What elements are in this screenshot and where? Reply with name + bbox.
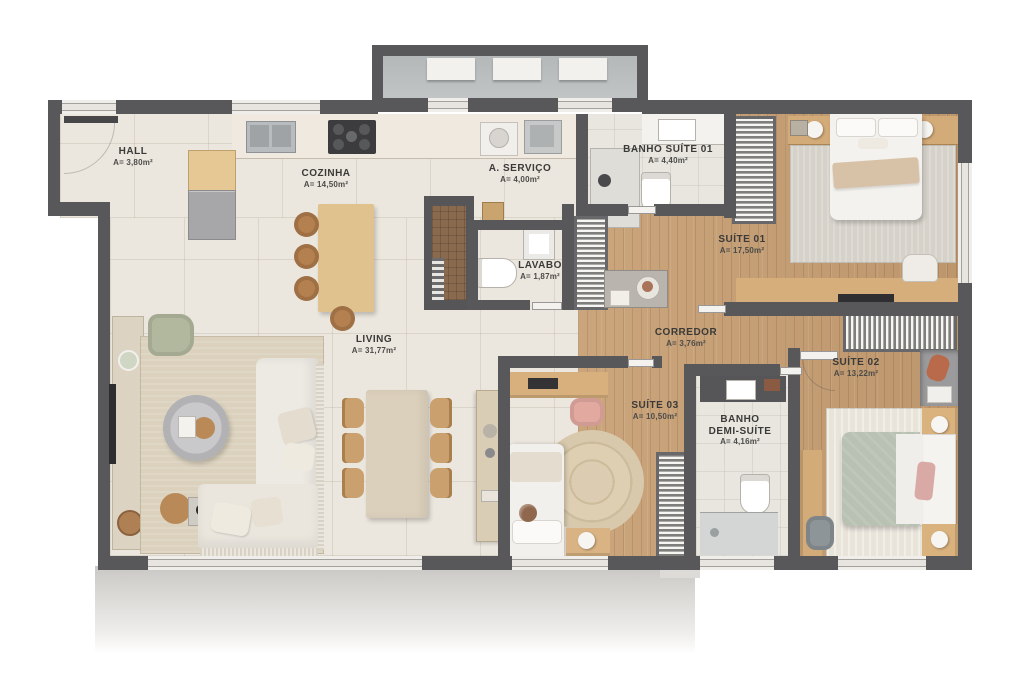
dining-chair-r2 xyxy=(430,433,452,463)
room-area: A= 1,87m² xyxy=(518,272,562,281)
corridor-decor-bread xyxy=(642,281,653,292)
laundry-washer-door xyxy=(489,128,509,148)
room-label-suite-03: SUÍTE 03 A= 10,50m² xyxy=(631,400,678,421)
room-area: A= 4,16m² xyxy=(709,437,772,446)
wall-banho-demi-east xyxy=(788,364,800,556)
suite03-pillow xyxy=(512,520,562,544)
ac-unit-1 xyxy=(427,58,475,80)
window-balcony-opening-1 xyxy=(428,98,468,112)
kitchen-sink-basin-right xyxy=(272,125,291,147)
suite03-lamp xyxy=(578,532,595,549)
banho-demi-sink xyxy=(726,380,756,400)
room-label-suite-02: SUÍTE 02 A= 13,22m² xyxy=(832,357,879,378)
tv-panel xyxy=(109,384,116,464)
tech-balcony-wall-left xyxy=(372,45,383,104)
coffee-table-bowl xyxy=(193,417,215,439)
dining-table xyxy=(366,390,428,518)
room-name: DEMI-SUÍTE xyxy=(709,426,772,438)
room-area: A= 13,22m² xyxy=(832,369,879,378)
kitchen-fridge xyxy=(188,190,236,240)
room-label-cozinha: COZINHA A= 14,50m² xyxy=(301,168,350,189)
sofa-cushion-2 xyxy=(282,442,315,472)
suite02-wardrobe xyxy=(843,312,957,352)
room-name: COZINHA xyxy=(301,168,350,180)
cooktop-burner-3 xyxy=(333,139,344,150)
ac-unit-3 xyxy=(559,58,607,80)
room-label-servico: A. SERVIÇO A= 4,00m² xyxy=(489,163,552,184)
living-armchair xyxy=(148,314,194,356)
wall-suite03-banho xyxy=(684,364,696,556)
bench-decor-plate xyxy=(118,350,139,371)
room-name: LIVING xyxy=(352,334,396,346)
tech-balcony-wall-top xyxy=(372,45,648,56)
room-area: A= 4,00m² xyxy=(489,175,552,184)
ac-unit-2 xyxy=(493,58,541,80)
room-label-suite-01: SUÍTE 01 A= 17,50m² xyxy=(718,234,765,255)
suite03-laptop xyxy=(528,378,558,389)
entry-door xyxy=(64,116,118,123)
sofa-cushion-3 xyxy=(210,501,253,537)
sideboard-vase-2 xyxy=(485,448,495,458)
room-name: HALL xyxy=(113,146,153,158)
dining-chair-r3 xyxy=(430,468,452,498)
door-banho-demi xyxy=(780,367,802,375)
utility-closet-shelf xyxy=(432,258,444,300)
suite02-niche-towels xyxy=(927,386,952,403)
terrace-slab xyxy=(95,566,695,654)
banho-s01-sink xyxy=(658,119,696,141)
room-name: A. SERVIÇO xyxy=(489,163,552,175)
sofa-fringe-bottom xyxy=(200,548,318,556)
wall-banho-s01-south-a xyxy=(576,204,628,216)
window-suite01 xyxy=(958,163,972,283)
room-area: A= 3,76m² xyxy=(655,339,717,348)
wall-banho-s01-south-b xyxy=(654,204,734,216)
room-area: A= 10,50m² xyxy=(631,412,678,421)
cooktop-burner-1 xyxy=(333,124,344,135)
island-stool-2 xyxy=(294,244,319,269)
suite02-chair xyxy=(806,516,834,550)
wall-lavabo-west xyxy=(468,220,478,310)
room-area: A= 14,50m² xyxy=(301,180,350,189)
suite01-lamp-left xyxy=(806,121,823,138)
lavabo-sink xyxy=(523,228,555,260)
suite01-pillow-right xyxy=(878,118,918,137)
dining-chair-l3 xyxy=(342,468,364,498)
room-area: A= 4,40m² xyxy=(623,156,713,165)
room-area: A= 17,50m² xyxy=(718,246,765,255)
wall-left-hall xyxy=(48,100,60,214)
lavabo-toilet xyxy=(477,258,517,288)
island-stool-3 xyxy=(294,276,319,301)
wall-lavabo-north xyxy=(468,220,568,230)
cooktop-burner-4 xyxy=(359,139,370,150)
room-label-hall: HALL A= 3,80m² xyxy=(113,146,153,167)
wall-suite03-north-a xyxy=(498,356,628,368)
window-balcony-opening-2 xyxy=(558,98,612,112)
suite01-pillow-small xyxy=(858,138,888,149)
kitchen-island xyxy=(318,204,374,312)
kitchen-tall-cabinet xyxy=(188,150,236,192)
room-label-lavabo: LAVABO A= 1,87m² xyxy=(518,260,562,281)
suite01-wardrobe xyxy=(732,116,776,224)
suite03-chair xyxy=(570,398,604,426)
room-name: CORREDOR xyxy=(655,327,717,339)
suite03-desk xyxy=(510,372,608,398)
island-stool-4 xyxy=(330,306,355,331)
wall-suite03-west xyxy=(498,356,510,556)
door-lavabo xyxy=(532,302,562,310)
suite02-lamp-top xyxy=(931,416,948,433)
wall-banho-s01-suite01 xyxy=(724,114,736,218)
wall-top-right xyxy=(642,100,972,114)
suite03-blanket xyxy=(510,452,562,482)
window-living xyxy=(148,556,422,570)
coffee-table-tray xyxy=(178,416,196,438)
banho-demi-decor xyxy=(764,379,780,391)
suite01-pillow-left xyxy=(836,118,876,137)
room-name: BANHO SUÍTE 01 xyxy=(623,144,713,156)
room-label-living: LIVING A= 31,77m² xyxy=(352,334,396,355)
kitchen-sink-basin-left xyxy=(250,125,269,147)
tech-balcony-wall-right xyxy=(637,45,648,104)
room-area: A= 31,77m² xyxy=(352,346,396,355)
room-name: SUÍTE 02 xyxy=(832,357,879,369)
room-name: BANHO xyxy=(709,414,772,426)
corridor-closet xyxy=(574,216,608,310)
window-suite03 xyxy=(512,556,608,570)
sideboard-vase-1 xyxy=(483,424,497,438)
wall-suite02-door-stub xyxy=(788,348,800,366)
window-kitchen xyxy=(232,100,320,114)
room-area: A= 3,80m² xyxy=(113,158,153,167)
suite01-desk-chair xyxy=(902,254,938,282)
cooktop-burner-2 xyxy=(359,124,370,135)
side-table-wood xyxy=(160,493,191,524)
sofa-cushion-4 xyxy=(250,496,284,528)
dining-chair-l1 xyxy=(342,398,364,428)
window-banho-demi xyxy=(700,556,774,570)
room-label-banho-suite-01: BANHO SUÍTE 01 A= 4,40m² xyxy=(623,144,713,165)
floor-plan: HALL A= 3,80m² COZINHA A= 14,50m² A. SER… xyxy=(0,0,1024,676)
room-label-corredor: CORREDOR A= 3,76m² xyxy=(655,327,717,348)
laundry-tank-basin xyxy=(530,125,554,147)
door-suite01 xyxy=(698,305,726,313)
wall-servico-banho xyxy=(576,114,588,214)
cooktop-burner-5 xyxy=(346,131,357,142)
door-banho-suite01 xyxy=(628,206,656,214)
room-name: LAVABO xyxy=(518,260,562,272)
suite03-knot-pillow xyxy=(519,504,537,522)
suite02-lamp-bottom xyxy=(931,531,948,548)
window-hall xyxy=(62,100,116,114)
room-label-banho-demi-suite: BANHO DEMI-SUÍTE A= 4,16m² xyxy=(709,414,772,446)
island-stool-1 xyxy=(294,212,319,237)
dining-chair-r1 xyxy=(430,398,452,428)
room-name: SUÍTE 03 xyxy=(631,400,678,412)
suite01-shelf-decor xyxy=(790,120,808,136)
wall-banho-demi-north xyxy=(684,364,780,376)
banho-demi-toilet xyxy=(740,474,770,514)
banho-s01-shower-head xyxy=(598,174,611,187)
wall-lavabo-south xyxy=(468,300,530,310)
dining-chair-l2 xyxy=(342,433,364,463)
window-suite02 xyxy=(838,556,926,570)
wall-suite01-south xyxy=(724,302,958,316)
corridor-towel xyxy=(610,290,630,306)
banho-demi-drain xyxy=(710,528,719,537)
door-suite03 xyxy=(628,359,654,367)
room-name: SUÍTE 01 xyxy=(718,234,765,246)
